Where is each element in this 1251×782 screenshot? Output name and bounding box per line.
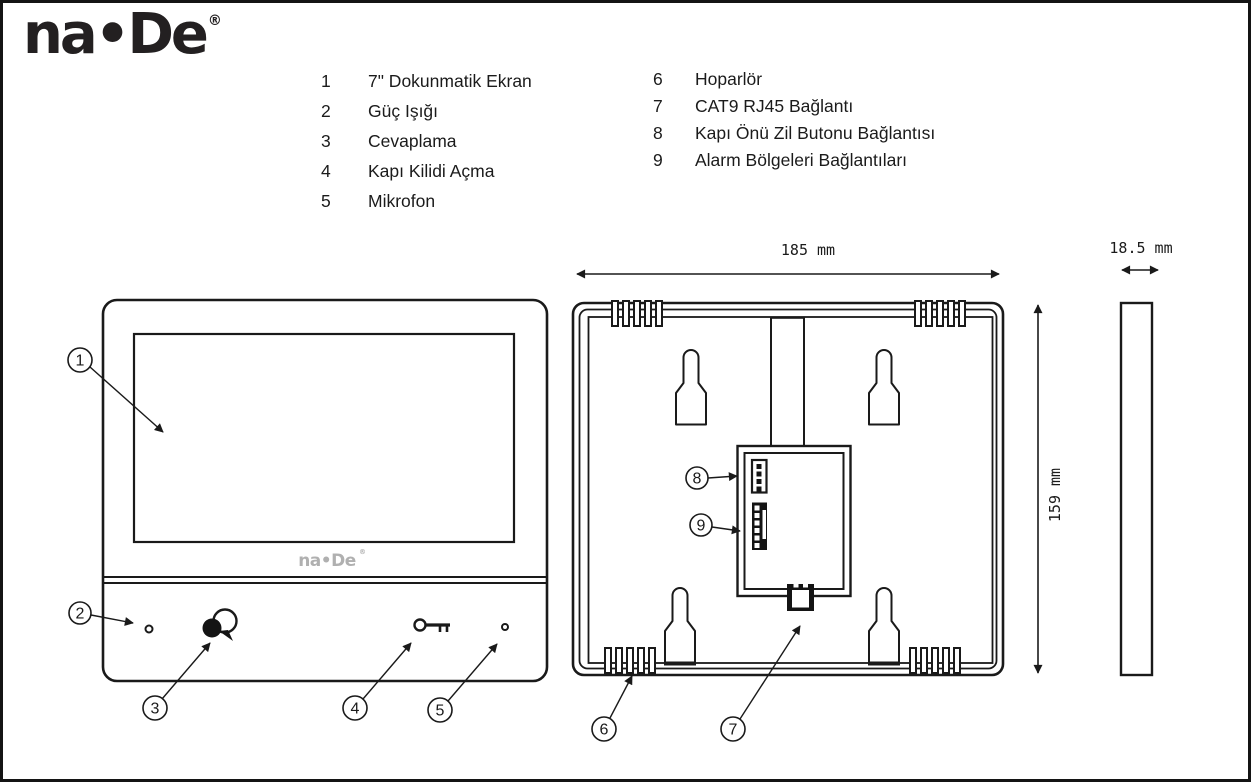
microphone-hole-icon xyxy=(502,624,508,630)
dimension-depth-label: 18.5 mm xyxy=(1109,239,1172,257)
callout-6: 6 xyxy=(592,676,632,741)
cable-channel xyxy=(771,318,804,447)
callout-5-number: 5 xyxy=(436,703,445,720)
callout-9-number: 9 xyxy=(697,518,706,535)
doorbell-connector xyxy=(752,460,767,493)
dimension-width: 185 mm xyxy=(577,241,999,274)
dimension-height-label: 159 mm xyxy=(1046,468,1064,522)
touch-screen xyxy=(134,334,514,542)
side-view-body xyxy=(1121,303,1152,675)
rj45-jack xyxy=(787,584,814,611)
dimension-height: 159 mm xyxy=(1038,305,1064,673)
dimension-depth: 18.5 mm xyxy=(1109,239,1172,270)
callout-4-number: 4 xyxy=(351,701,360,718)
callout-6-number: 6 xyxy=(600,722,609,739)
callout-8-number: 8 xyxy=(693,471,702,488)
technical-diagram: na•De ® 1 xyxy=(3,3,1248,779)
device-front-logo-reg: ® xyxy=(359,548,366,556)
callout-3-number: 3 xyxy=(151,701,160,718)
front-view: na•De ® 1 xyxy=(68,300,547,722)
device-front-logo: na•De xyxy=(298,551,356,571)
dimension-width-label: 185 mm xyxy=(781,241,835,259)
power-led-icon xyxy=(146,626,153,633)
back-view: 8 9 6 7 xyxy=(573,301,1003,741)
alarm-zone-connector xyxy=(752,503,767,551)
callout-1-number: 1 xyxy=(76,353,85,370)
datasheet-page: na•De ® 1 7" Dokunmatik Ekran 2 Güç Işığ… xyxy=(0,0,1251,782)
callout-7-number: 7 xyxy=(729,722,738,739)
callout-2-number: 2 xyxy=(76,606,85,623)
